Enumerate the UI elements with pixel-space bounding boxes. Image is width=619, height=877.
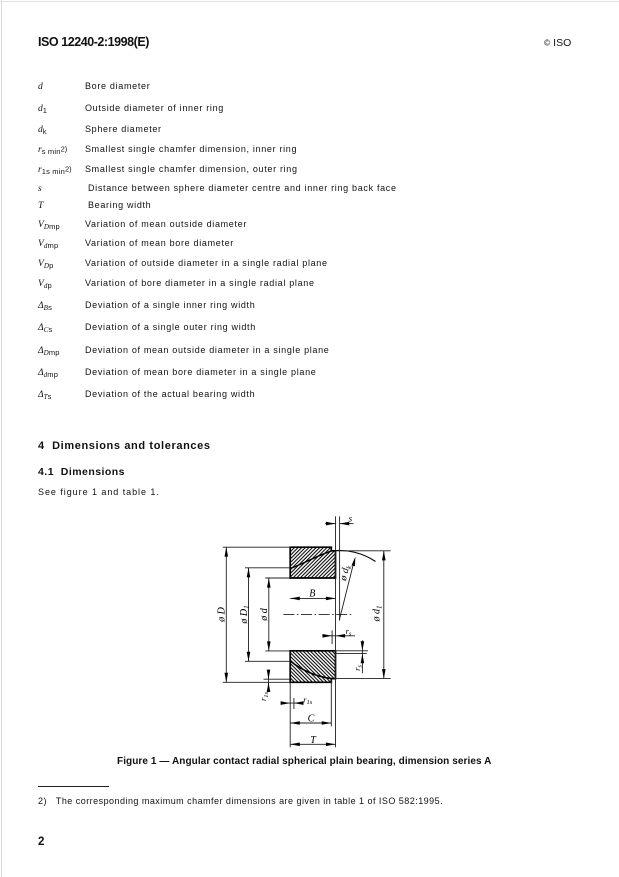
svg-text:s: s — [349, 514, 353, 524]
svg-text:C: C — [308, 713, 315, 724]
svg-text:rs: rs — [352, 665, 364, 671]
svg-text:r1s: r1s — [303, 695, 313, 707]
svg-text:B: B — [309, 589, 315, 600]
svg-text:rs: rs — [346, 626, 352, 638]
svg-text:ø d1: ø d1 — [372, 606, 384, 623]
svg-text:r1s: r1s — [258, 691, 270, 701]
svg-text:ø D: ø D — [217, 606, 228, 623]
svg-text:ø D1: ø D1 — [239, 605, 251, 624]
svg-text:ø d: ø d — [259, 607, 270, 622]
